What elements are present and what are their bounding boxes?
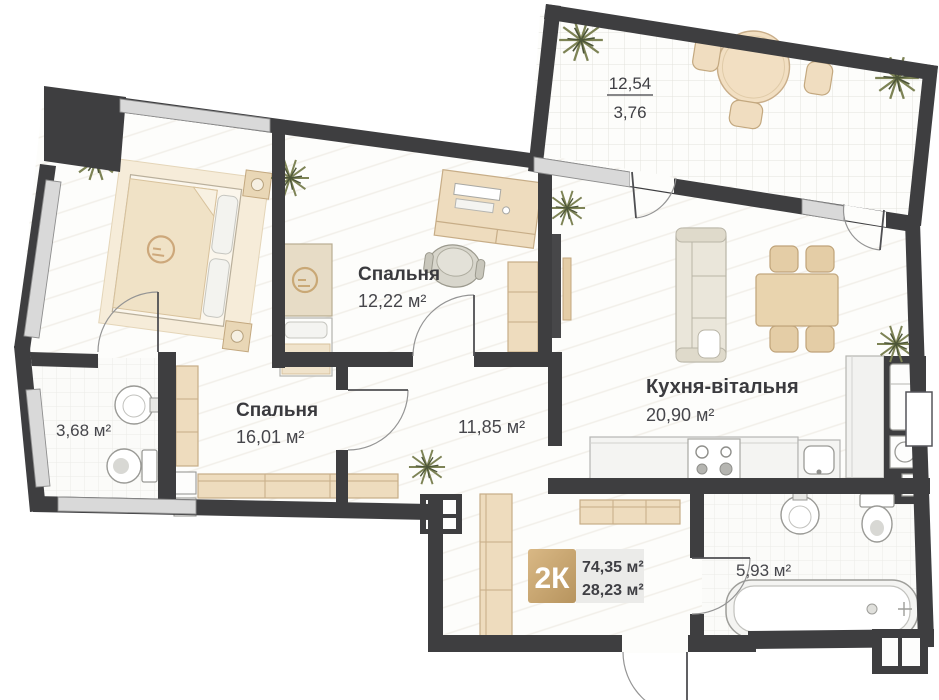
stove [688, 439, 740, 479]
kitchen-living-area: 20,90 м² [646, 405, 714, 425]
badge-living-area: 28,23 м² [582, 582, 644, 599]
dining-table [756, 274, 838, 326]
chair [803, 61, 834, 97]
terrace-width-value: 3,76 [613, 103, 646, 122]
master-bed-group [98, 153, 272, 352]
sofa-pillow [698, 330, 720, 358]
media-panel [563, 258, 571, 320]
bedroom-small-area: 12,22 м² [358, 291, 426, 311]
pillow [285, 322, 327, 338]
bedroom-closet [174, 366, 198, 516]
hall-wardrobe [480, 494, 512, 636]
hallway-area: 11,85 м² [458, 417, 525, 437]
floorplan-canvas: 12,54 3,76 Спальня 12,22 м² Спальня 16,0… [0, 0, 939, 700]
badge-type: 2К [535, 562, 571, 595]
entry-sideboard [580, 500, 680, 524]
window [58, 497, 196, 514]
terrace-area-value: 12,54 [609, 74, 652, 93]
bathroom-small-area: 3,68 м² [56, 421, 111, 440]
badge-total-area: 74,35 м² [582, 559, 644, 576]
closet [508, 262, 538, 352]
apartment-badge: 2К 74,35 м² 28,23 м² [528, 549, 644, 603]
bathroom-large-area: 5,93 м² [736, 561, 791, 580]
sofa [676, 228, 726, 362]
bedroom-small-label: Спальня [358, 264, 440, 285]
floorplan-svg: 12,54 3,76 Спальня 12,22 м² Спальня 16,0… [0, 0, 939, 700]
window [906, 392, 932, 446]
chair [728, 99, 764, 130]
bedroom-master-label: Спальня [236, 400, 318, 421]
sink [115, 386, 153, 424]
tv [552, 234, 561, 338]
kitchen-living-label: Кухня-вітальня [646, 376, 799, 398]
sideboard [198, 474, 398, 498]
bedroom-master-area: 16,01 м² [236, 427, 304, 447]
mouse [502, 206, 510, 214]
